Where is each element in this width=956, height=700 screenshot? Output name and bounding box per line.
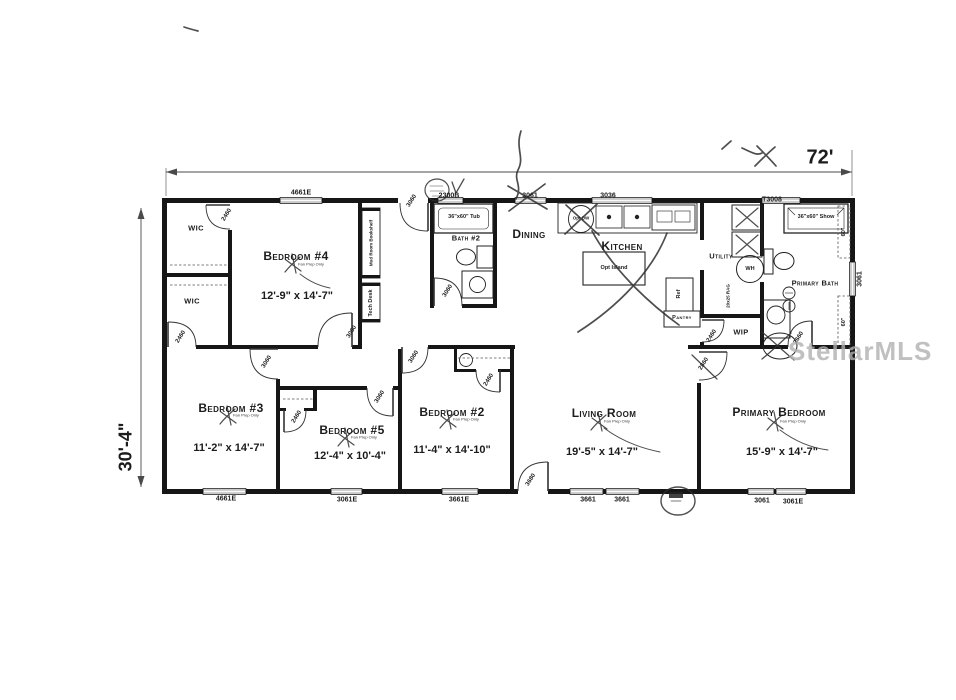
vanity-primary-bath [762,300,790,338]
window-label-top-5: T3008 [762,197,782,204]
toilet-primary-bath [764,249,794,274]
floorplan-graphics [0,0,956,700]
size-living: 19'-5" x 14'-7" [566,446,638,458]
room-bath2: Bath #2 [452,234,481,243]
room-primary-bedroom: Primary Bedroom [732,405,825,419]
window-label-top-2: 2300B [439,193,460,200]
dimension-width: 72' [806,147,833,170]
shower-label: 36"x60" Show [795,214,837,220]
pen-annotations [184,27,828,515]
window-label-top-4: 3036 [600,193,616,200]
room-primary-bath: Primary Bath [792,279,839,288]
closet-light-marker [460,354,473,367]
window-label-bottom-4: 3661 [580,497,596,504]
fan-note-living: Fan Prep Only [604,419,630,424]
refrigerator-label: Ref [676,290,682,299]
water-heater-label: WH [745,266,754,272]
closet-rod-label-b: 60" [841,318,847,327]
room-wip: WIP [733,328,748,337]
dishwasher-label: Opt DW [572,215,590,220]
size-bedroom3: 11'-2" x 14'-7" [193,442,264,454]
fan-prep-marks [220,254,828,452]
room-pantry: Pantry [672,315,692,321]
return-air-label: 20x25 RAG [726,284,731,308]
window-label-bottom-3: 3661E [449,497,469,504]
size-primary-bedroom: 15'-9" x 14'-7" [746,446,818,458]
window-label-top-3: 3061 [522,193,538,200]
window-label-right-1: 3061 [857,271,864,287]
fan-note-bedroom2: Fan Prep Only [453,417,479,422]
closet-rod-label-a: 60" [841,228,847,237]
room-utility: Utility [709,252,733,261]
room-kitchen: Kitchen [601,239,642,253]
fan-note-primary-bedroom: Fan Prep Only [780,419,806,424]
window-label-bottom-7: 3061E [783,499,803,506]
tub-label: 36"x60" Tub [446,214,482,220]
size-bedroom5: 12'-4" x 10'-4" [314,450,386,462]
window-label-bottom-2: 3061E [337,497,357,504]
sink-bath2 [462,271,493,298]
room-wic-bottom: WIC [184,297,200,306]
floor-plan-page: 72' 30'-4" WIC WIC Bedroom #4 12'-9" x 1… [0,0,956,700]
room-dining: Dining [512,227,545,241]
window-label-top-1: 4661E [291,190,311,197]
tech-desk-label: Tech Desk [368,289,374,316]
window-label-bottom-1: 4661E [216,496,236,503]
toilet-bath2 [457,246,494,268]
fan-note-bedroom4: Fan Prep Only [298,262,324,267]
island-label: Opt Island [596,265,632,271]
room-wic-top: WIC [188,224,204,233]
dimension-depth: 30'-4" [116,423,137,472]
window-label-bottom-5: 3661 [614,497,630,504]
fan-note-bedroom5: Fan Prep Only [351,435,377,440]
size-bedroom2: 11'-4" x 14'-10" [413,444,490,456]
mud-room-bookshelf-label: Mud Room Bookshelf [369,220,374,266]
size-bedroom4: 12'-9" x 14'-7" [261,290,333,302]
fan-note-bedroom3: Fan Prep Only [233,413,259,418]
window-label-bottom-6: 3061 [754,498,770,505]
